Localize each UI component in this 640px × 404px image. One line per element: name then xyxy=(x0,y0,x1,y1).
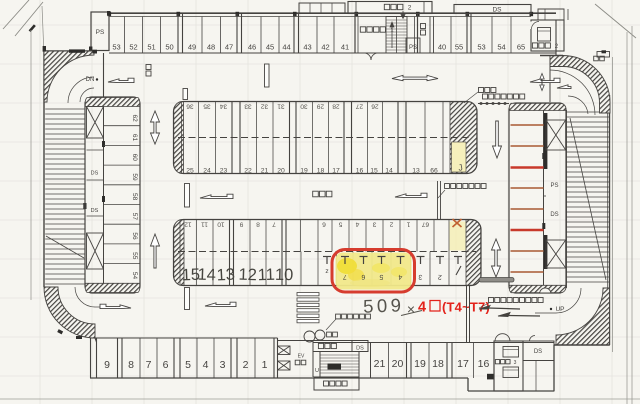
svg-text:17: 17 xyxy=(332,168,340,175)
svg-text:61: 61 xyxy=(131,134,138,142)
svg-text:×: × xyxy=(407,301,415,317)
svg-text:43: 43 xyxy=(303,43,311,52)
svg-text:45: 45 xyxy=(266,43,274,52)
svg-text:3: 3 xyxy=(220,359,226,371)
svg-text:4: 4 xyxy=(203,359,209,371)
svg-text:10: 10 xyxy=(217,221,225,228)
svg-text:U: U xyxy=(315,368,319,374)
svg-text:4: 4 xyxy=(355,221,359,228)
svg-text:29: 29 xyxy=(317,103,325,110)
svg-text:20: 20 xyxy=(392,358,404,370)
svg-text:6: 6 xyxy=(361,273,366,280)
svg-text:18: 18 xyxy=(317,168,325,175)
svg-text:54: 54 xyxy=(497,43,505,52)
svg-text:35: 35 xyxy=(203,103,211,110)
svg-text:5: 5 xyxy=(338,221,342,228)
svg-text:47: 47 xyxy=(225,43,233,52)
svg-text:60: 60 xyxy=(131,154,138,162)
svg-text:4: 4 xyxy=(398,273,403,280)
svg-text:19: 19 xyxy=(300,168,308,175)
svg-text:8: 8 xyxy=(128,359,134,371)
svg-text:4: 4 xyxy=(418,300,426,316)
svg-text:17: 17 xyxy=(457,358,469,370)
svg-text:32: 32 xyxy=(261,103,269,110)
svg-text:19: 19 xyxy=(414,358,426,370)
svg-text:3: 3 xyxy=(514,360,517,366)
svg-text:UP: UP xyxy=(555,306,564,313)
svg-text:33: 33 xyxy=(244,103,252,110)
svg-text:12: 12 xyxy=(238,266,257,285)
svg-text:5: 5 xyxy=(379,273,384,280)
svg-text:11: 11 xyxy=(257,266,275,285)
svg-text:DS: DS xyxy=(550,212,558,218)
svg-text:13: 13 xyxy=(412,168,420,175)
svg-text:31: 31 xyxy=(277,103,285,110)
svg-text:11: 11 xyxy=(201,221,208,228)
svg-text:DS: DS xyxy=(534,349,542,355)
svg-text:13: 13 xyxy=(216,266,235,285)
svg-text:8: 8 xyxy=(256,221,260,228)
svg-text:PS: PS xyxy=(96,29,105,36)
svg-text:3: 3 xyxy=(418,273,423,280)
svg-text:57: 57 xyxy=(131,213,138,221)
svg-text:1: 1 xyxy=(406,221,410,228)
svg-text:7: 7 xyxy=(272,221,276,228)
svg-text:58: 58 xyxy=(131,193,138,201)
svg-text:41: 41 xyxy=(341,43,349,52)
svg-text:6: 6 xyxy=(322,221,326,228)
svg-text:50: 50 xyxy=(165,43,173,52)
svg-text:PS: PS xyxy=(409,45,417,51)
svg-text:5: 5 xyxy=(185,359,191,371)
svg-text:EV: EV xyxy=(298,354,305,360)
svg-text:49: 49 xyxy=(188,43,196,52)
svg-text:9: 9 xyxy=(239,221,243,228)
svg-text:7: 7 xyxy=(146,359,152,371)
svg-text:56: 56 xyxy=(131,232,138,240)
svg-text:21: 21 xyxy=(261,168,269,175)
svg-text:7: 7 xyxy=(343,273,348,280)
svg-text:DN: DN xyxy=(86,77,95,83)
svg-text:25: 25 xyxy=(186,168,194,175)
svg-text:27: 27 xyxy=(356,103,364,110)
svg-text:54: 54 xyxy=(131,272,138,280)
svg-text:21: 21 xyxy=(374,358,386,370)
svg-text:6: 6 xyxy=(163,359,169,371)
svg-text:62: 62 xyxy=(131,114,138,122)
svg-text:15: 15 xyxy=(370,168,378,175)
svg-text:DS: DS xyxy=(492,7,502,14)
svg-text:55: 55 xyxy=(455,43,463,52)
svg-text:48: 48 xyxy=(207,43,215,52)
svg-text:67: 67 xyxy=(422,221,430,228)
svg-text:16: 16 xyxy=(478,358,490,370)
svg-text:16: 16 xyxy=(356,168,364,175)
svg-text:DS: DS xyxy=(91,171,99,177)
svg-text:22: 22 xyxy=(244,168,252,175)
svg-text:42: 42 xyxy=(321,43,329,52)
svg-text:14: 14 xyxy=(385,168,393,175)
svg-text:1: 1 xyxy=(262,359,268,371)
svg-text:DS: DS xyxy=(91,208,99,214)
svg-text:2: 2 xyxy=(408,5,412,12)
svg-text:59: 59 xyxy=(131,173,138,181)
svg-text:2: 2 xyxy=(438,273,443,280)
svg-text:36: 36 xyxy=(186,103,194,110)
svg-text:24: 24 xyxy=(203,168,211,175)
svg-text:2: 2 xyxy=(389,221,393,228)
svg-text:55: 55 xyxy=(131,252,138,260)
svg-text:53: 53 xyxy=(112,43,120,52)
svg-text:34: 34 xyxy=(220,103,228,110)
svg-text:2: 2 xyxy=(243,359,249,371)
svg-text:44: 44 xyxy=(282,43,290,52)
svg-text:66: 66 xyxy=(430,168,438,175)
svg-text:52: 52 xyxy=(129,43,137,52)
svg-text:51: 51 xyxy=(147,43,155,52)
svg-text:12: 12 xyxy=(184,221,192,228)
svg-text:z: z xyxy=(325,268,328,275)
svg-text:28: 28 xyxy=(332,103,340,110)
svg-text:26: 26 xyxy=(371,103,379,110)
svg-text:18: 18 xyxy=(432,358,444,370)
svg-text:20: 20 xyxy=(277,168,285,175)
svg-text:40: 40 xyxy=(438,43,446,52)
svg-text:PS: PS xyxy=(550,183,558,189)
svg-text:3: 3 xyxy=(372,221,376,228)
svg-text:46: 46 xyxy=(248,43,256,52)
svg-text:509: 509 xyxy=(363,294,405,316)
svg-text:14: 14 xyxy=(197,266,216,285)
svg-text:53: 53 xyxy=(477,43,485,52)
svg-text:DS: DS xyxy=(356,346,364,352)
svg-text:10: 10 xyxy=(275,266,294,284)
svg-text:23: 23 xyxy=(220,168,228,175)
svg-text:9: 9 xyxy=(104,359,110,371)
svg-text:30: 30 xyxy=(300,103,308,110)
svg-text:65: 65 xyxy=(517,43,525,52)
